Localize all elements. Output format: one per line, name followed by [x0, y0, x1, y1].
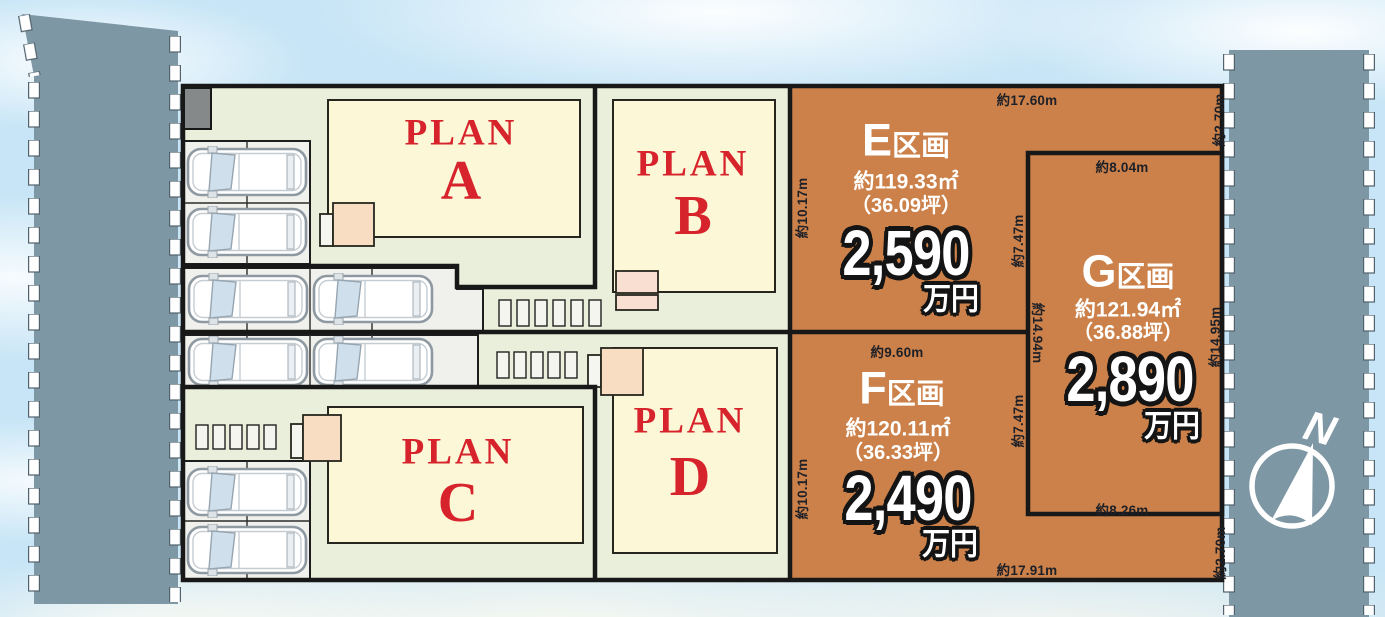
plot-e-price: 2,590	[842, 221, 969, 285]
porch-b-step	[616, 295, 658, 310]
plan-c-letter: C	[438, 475, 478, 531]
dim-e-left: 約10.17m	[791, 178, 811, 239]
plot-e-price-unit: 万円	[923, 284, 979, 315]
car-icon	[314, 336, 432, 388]
road-right: N	[1223, 50, 1375, 617]
road-right-dashes-right	[1363, 54, 1375, 615]
dim-f-bottom-right: 約2.70m	[1209, 527, 1229, 580]
plot-f-title: F区画	[859, 366, 945, 411]
plot-e-title: E区画	[862, 118, 950, 163]
car-icon	[189, 336, 307, 388]
porch-d	[601, 348, 643, 395]
plan-b-letter: B	[674, 188, 711, 244]
plan-d-word: PLAN	[634, 403, 747, 440]
plot-e-tsubo: （36.09坪）	[851, 196, 961, 216]
dim-g-left: 約14.94m	[1029, 303, 1049, 364]
plot-g-price: 2,890	[1066, 347, 1193, 411]
plot-g-area: 約121.94㎡	[1075, 300, 1181, 321]
plot-g-suffix: 区画	[1117, 262, 1175, 294]
lot-layout-plan: N	[0, 0, 1385, 617]
dim-f-left: 約10.17m	[791, 459, 811, 520]
porch-d-step	[588, 355, 601, 387]
plot-e-suffix: 区画	[892, 131, 950, 163]
plot-g-price-unit: 万円	[1144, 411, 1200, 442]
plot-f-price-unit: 万円	[922, 529, 978, 560]
utility-structure	[184, 88, 211, 129]
porch-a	[333, 203, 374, 246]
road-left-dashes-left	[28, 82, 40, 602]
dim-e-right: 約2.70m	[1208, 94, 1228, 147]
car-icon	[189, 273, 307, 325]
plan-a-word: PLAN	[405, 115, 518, 152]
plan-b-word: PLAN	[637, 146, 750, 183]
porch-c-step	[291, 424, 303, 458]
plot-f-letter: F	[859, 363, 887, 414]
dim-g-right: 約14.95m	[1204, 307, 1224, 368]
plot-f-suffix: 区画	[887, 379, 945, 411]
dim-e-top: 約17.60m	[997, 89, 1058, 109]
dim-f-top: 約9.60m	[871, 341, 924, 361]
dim-eg-side: 約7.47m	[1007, 215, 1027, 268]
plot-g-letter: G	[1081, 246, 1116, 297]
plot-f-price: 2,490	[844, 466, 971, 530]
porch-b	[616, 271, 658, 293]
road-left	[18, 14, 181, 604]
car-icon	[314, 273, 432, 325]
porch-a-step	[320, 214, 333, 246]
dim-g-bottom: 約8.26m	[1096, 499, 1149, 519]
plot-e-area: 約119.33㎡	[853, 172, 958, 193]
car-icon	[188, 206, 306, 258]
plot-f-tsubo: （36.33坪）	[843, 443, 953, 463]
plan-c-word: PLAN	[402, 434, 515, 471]
car-icon	[188, 466, 306, 518]
plot-e-letter: E	[862, 115, 892, 166]
plot-g-tsubo: （36.88坪）	[1073, 323, 1183, 343]
porch-c	[303, 415, 341, 461]
plan-a-letter: A	[441, 153, 481, 209]
car-icon	[188, 524, 306, 576]
road-left-dashes-right	[169, 36, 181, 602]
plot-f-area: 約120.11㎡	[845, 419, 950, 440]
dim-fg-side: 約7.47m	[1007, 395, 1027, 448]
plot-g-title: G区画	[1081, 249, 1174, 294]
dim-g-top: 約8.04m	[1096, 156, 1149, 176]
car-icon	[188, 146, 306, 198]
plan-d-letter: D	[670, 449, 710, 505]
dim-f-bottom: 約17.91m	[997, 559, 1058, 579]
